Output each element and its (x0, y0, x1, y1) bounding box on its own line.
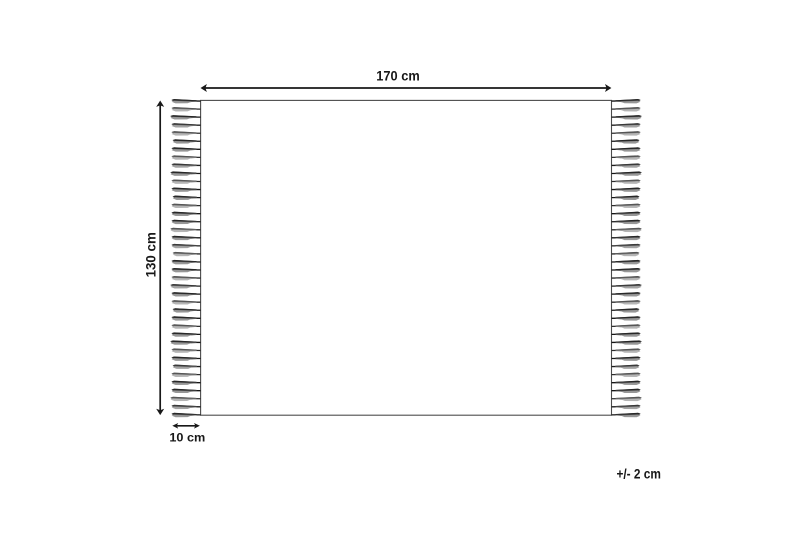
svg-text:10 cm: 10 cm (169, 431, 205, 445)
svg-text:170 cm: 170 cm (376, 68, 419, 84)
svg-text:+/- 2 cm: +/- 2 cm (616, 467, 661, 482)
svg-text:130 cm: 130 cm (143, 232, 158, 277)
